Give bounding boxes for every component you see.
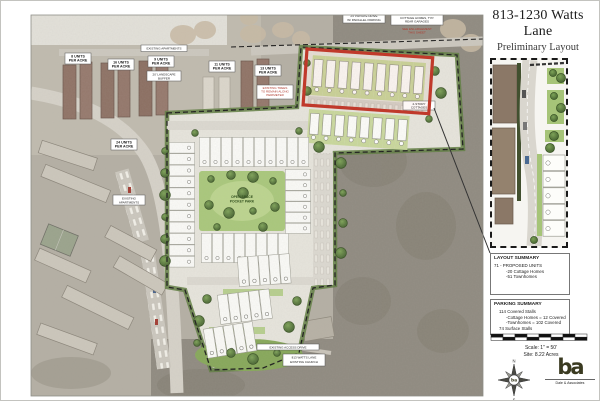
apartments-strip-note: EXISTING APARTMENTS: [147, 47, 182, 51]
svg-text:PER ACRE: PER ACRE: [259, 71, 278, 75]
access-drive-note: EXISTING ACCESS DRIVE: [269, 345, 306, 349]
inset-road: [527, 60, 535, 246]
svg-text:REAR GARAGES: REAR GARAGES: [405, 19, 429, 23]
plan-sheet: 8 UNITS PER ACRE 16 UNITS PER ACRE 9 UNI…: [0, 0, 600, 401]
svg-text:THIS SHEET: THIS SHEET: [408, 31, 426, 35]
enlargement-highlight-box: [303, 49, 433, 114]
scale-value: Scale: 1" = 50': [490, 345, 592, 352]
svg-text:PER ACRE: PER ACRE: [152, 62, 171, 66]
svg-text:PER ACRE: PER ACRE: [213, 67, 232, 71]
inset-drawing: [492, 60, 566, 246]
parking-summary-title: PARKING SUMMARY: [494, 302, 566, 307]
layout-summary-title: LAYOUT SUMMARY: [494, 256, 566, 261]
inset-buildings: [492, 65, 517, 224]
firm-logo-name: Dale & Associates: [545, 379, 595, 385]
compass-north-label: N: [512, 359, 515, 364]
compass-south-label: S: [513, 398, 516, 401]
sheet-title: 813-1230 Watts Lane: [479, 8, 597, 40]
svg-text:PER ACRE: PER ACRE: [115, 145, 134, 149]
scale-bar: [489, 333, 593, 342]
sheet-subtitle: Preliminary Layout: [479, 42, 597, 53]
compass-logo-mark: ba: [511, 378, 517, 384]
svg-text:PERIMETER: PERIMETER: [266, 93, 284, 97]
svg-text:APARTMENTS: APARTMENTS: [119, 200, 139, 204]
firm-logo-monogram: ba: [541, 356, 599, 378]
svg-text:PER ACRE: PER ACRE: [69, 59, 88, 63]
layout-summary-line: -51 Townhomes: [494, 274, 566, 280]
parking-summary-line: 74 Surface Stalls: [494, 326, 566, 332]
svg-text:W/ PARALLEL PARKING: W/ PARALLEL PARKING: [347, 18, 381, 22]
parking-summary: PARKING SUMMARY 114 Covered Stalls -Cott…: [490, 299, 570, 335]
svg-text:BUFFER: BUFFER: [158, 76, 171, 80]
svg-text:PER ACRE: PER ACRE: [112, 65, 131, 69]
svg-text:POCKET PARK: POCKET PARK: [230, 200, 255, 204]
layout-summary: LAYOUT SUMMARY 71 - PROPOSED UNITS -20 C…: [490, 253, 570, 295]
park-label: OPEN SPACE: [231, 195, 254, 199]
aerial-photo: 8 UNITS PER ACRE 16 UNITS PER ACRE 9 UNI…: [31, 11, 483, 401]
firm-logo: ba Dale & Associates: [541, 356, 599, 385]
title-block: 813-1230 Watts Lane Preliminary Layout: [479, 8, 597, 53]
svg-text:EXISTING CHURCH: EXISTING CHURCH: [290, 360, 318, 364]
enlargement-inset: [490, 58, 568, 248]
north-arrow-compass: ba N S: [494, 358, 534, 400]
